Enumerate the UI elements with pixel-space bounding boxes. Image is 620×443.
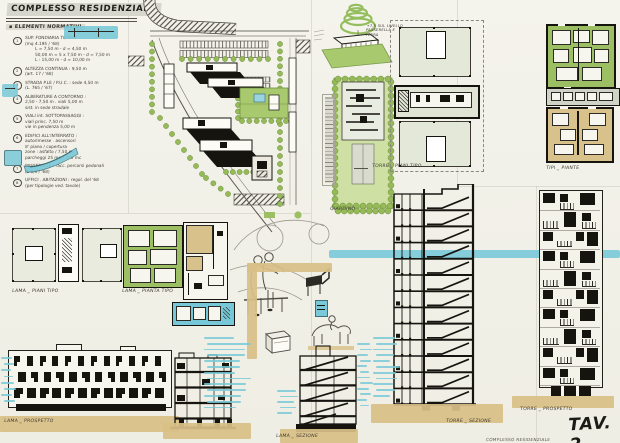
note-line: (per tipologie ved. tavole)	[24, 184, 98, 190]
tower-plinth	[551, 386, 591, 396]
normative-note: 5VIALI int. SOTTOPASSAGGI :viali princ. …	[13, 114, 131, 131]
elevation-floor	[540, 230, 600, 250]
tower-section-label: TORRE _ SEZIONE	[446, 419, 492, 424]
elevation-floor	[540, 327, 600, 347]
annotation-highlight	[207, 366, 240, 368]
site-buildings	[164, 58, 296, 180]
ground-band-section-a	[163, 423, 251, 439]
title-underline	[6, 18, 137, 22]
note-number: 2	[13, 67, 22, 76]
tree-icon	[223, 169, 228, 174]
balcony-railing	[582, 339, 596, 346]
annotation-highlight	[376, 389, 395, 391]
tree-icon	[149, 72, 154, 77]
footer-stamp: COMPLESSO RESIDENZIALE	[486, 437, 551, 442]
window-cell	[580, 251, 595, 263]
tower-elevation-label: TORRE _ PROSPETTO	[520, 407, 573, 412]
window-notch	[68, 362, 71, 366]
annotation-highlight	[4, 400, 15, 402]
window-cell	[155, 356, 161, 366]
note-line: sist. in sede stradale	[24, 106, 85, 112]
tree-icon	[149, 109, 154, 114]
window-cell	[65, 388, 74, 398]
tree-icon	[149, 102, 154, 107]
slab-section-b	[294, 344, 362, 440]
tree-icon	[203, 175, 208, 180]
tree-icon	[225, 191, 230, 196]
plaza-pencil-lines	[230, 220, 329, 300]
stair-core	[426, 136, 446, 162]
leader-line	[354, 168, 368, 169]
tree-icon	[199, 171, 204, 176]
window-cell	[543, 193, 555, 203]
stair-run	[62, 238, 72, 262]
tree-icon	[149, 94, 154, 99]
tree-icon	[342, 76, 348, 82]
tree-icon	[237, 169, 242, 174]
tree-icon	[371, 76, 377, 82]
window-cell	[95, 372, 103, 382]
window-notch	[108, 378, 111, 382]
tree-icon	[277, 49, 282, 54]
sheet-seam	[457, 186, 620, 187]
annotation-highlight	[376, 366, 400, 368]
normative-note: 2ALTEZZA CONTINUA : 9,50 m(art. 17 / '68…	[13, 67, 131, 78]
tree-icon	[179, 56, 184, 61]
tower-plan-lower	[399, 121, 471, 167]
stair-core	[100, 244, 117, 258]
window-cell	[576, 348, 584, 357]
window-notch	[56, 378, 59, 382]
stair-core	[25, 246, 43, 261]
green-hedge	[264, 212, 275, 218]
tower-section	[392, 184, 480, 416]
window-cell	[31, 372, 39, 382]
window-cell	[582, 213, 591, 221]
tree-icon	[163, 123, 168, 128]
balcony-railing	[543, 338, 559, 346]
window-cell	[27, 388, 36, 398]
tree-icon	[277, 177, 282, 182]
annotation-highlight	[357, 343, 370, 345]
slab-plan-a	[12, 228, 56, 282]
tree-icon	[332, 196, 338, 202]
window-cell	[108, 372, 116, 382]
tree-icon	[277, 64, 282, 69]
window-cell	[65, 356, 71, 366]
window-notch	[133, 378, 136, 382]
normative-note: 8UFFICI . ABITAZIONI : regol. del '68(pe…	[13, 178, 131, 189]
annotation-highlight	[376, 343, 397, 345]
annotation-highlight	[360, 393, 371, 395]
window-cell	[543, 232, 553, 241]
annotation-highlight	[1, 357, 12, 359]
window-cell	[116, 356, 122, 366]
tree-icon	[169, 131, 174, 136]
annotation-highlight	[207, 401, 241, 403]
note-line: vie in pendenza 5,00 m	[24, 125, 83, 131]
tree-icon	[149, 41, 154, 46]
elevation-floor	[540, 288, 600, 308]
tree-icon	[248, 56, 253, 61]
note-line: (L. 765 / '67)	[24, 86, 98, 92]
tree-icon	[277, 193, 282, 198]
window-cell	[560, 194, 568, 202]
window-cell	[52, 356, 58, 366]
slab-elevation	[8, 350, 172, 408]
window-cell	[78, 388, 87, 398]
window-cell	[40, 388, 49, 398]
balcony-railing	[543, 280, 559, 288]
window-cell	[82, 372, 90, 382]
window-cell	[560, 369, 568, 377]
window-cell	[18, 372, 26, 382]
note-line: VIALI int. SOTTOPASSAGGI :	[24, 114, 83, 120]
annotation-highlight	[204, 395, 241, 397]
annotation-highlight	[1, 369, 11, 371]
central-court	[240, 88, 288, 118]
window-cell	[543, 309, 555, 319]
tree-sketch	[294, 211, 301, 218]
annotation-highlight	[204, 360, 240, 362]
note-number: 5	[13, 115, 22, 124]
tree-icon	[149, 79, 154, 84]
window-cell	[133, 372, 141, 382]
tree-icon	[218, 186, 223, 191]
note-number: 1	[13, 37, 22, 46]
tree-icon	[149, 87, 154, 92]
window-cell	[146, 372, 154, 382]
tree-icon	[277, 78, 282, 83]
tree-icon	[157, 115, 162, 120]
annotation-highlight	[373, 349, 393, 351]
slab-elevation-label: LAMA _ PROSPETTO	[4, 419, 54, 424]
plate-number: TAV. 2	[568, 413, 620, 443]
slab-plans-label: LAMA _ PIANI TIPO	[12, 289, 59, 294]
annotation-highlight	[204, 372, 235, 374]
balcony-railing	[557, 299, 572, 306]
tree-icon	[187, 155, 192, 160]
tree-icon	[360, 208, 366, 214]
annotation-highlight	[373, 383, 393, 385]
window-cell	[69, 372, 77, 382]
tree-icon	[269, 118, 274, 123]
balcony-railing	[543, 221, 559, 229]
window-cell	[543, 251, 555, 261]
axonometric-building	[322, 34, 392, 68]
tree-icon	[244, 169, 249, 174]
window-cell	[116, 388, 125, 398]
annotation-highlight	[277, 401, 294, 403]
annotation-highlight	[4, 363, 14, 365]
window-cell	[560, 252, 568, 260]
annotation-highlight	[207, 354, 245, 356]
window-cell	[52, 388, 61, 398]
note-line: L : 15,00 m - d = 10,00 m	[34, 58, 109, 64]
balcony-railing	[560, 261, 574, 268]
slab-plan-narrow	[58, 224, 79, 282]
annotation-highlight	[1, 394, 12, 396]
bullet-icon: ▪	[9, 24, 13, 30]
balcony-railing	[560, 203, 574, 210]
tower-plan-upper	[399, 27, 471, 77]
tree-icon	[277, 161, 282, 166]
tree-icon	[366, 208, 372, 214]
tree-icon	[332, 189, 338, 195]
tree-icon	[181, 147, 186, 152]
window-notch	[145, 362, 148, 366]
annotation-highlight	[357, 399, 367, 401]
annotation-highlight	[207, 389, 246, 391]
window-notch	[46, 394, 49, 398]
window-cell	[564, 212, 576, 227]
apartment-plan-green	[546, 24, 616, 89]
window-cell	[120, 372, 128, 382]
annotation-highlight	[373, 395, 390, 397]
tree-icon	[276, 118, 281, 123]
window-notch	[148, 394, 151, 398]
tree-icon	[277, 153, 282, 158]
elevation-floor	[540, 249, 600, 269]
tree-icon	[277, 201, 282, 206]
chair-sketch	[306, 269, 329, 296]
elevation-floor	[540, 366, 600, 386]
tree-icon	[254, 118, 259, 123]
elevation-floor	[540, 307, 600, 327]
tree-icon	[247, 118, 252, 123]
tree-icon	[193, 163, 198, 168]
tree-icon	[231, 56, 236, 61]
note-number: 8	[13, 179, 22, 188]
tree-icon	[261, 118, 266, 123]
window-cell	[27, 356, 33, 366]
tree-icon	[277, 56, 282, 61]
normative-note: 1SUP. FONDIARIA TOTALE(mq 4.195 / '68)L …	[13, 36, 131, 64]
apartment-plan-green-mid	[123, 225, 183, 288]
tree-icon	[214, 56, 219, 61]
window-cell	[560, 310, 568, 318]
tree-icon	[205, 56, 210, 61]
slab-elevation-base	[16, 404, 166, 411]
window-cell	[587, 348, 598, 362]
window-notch	[122, 394, 125, 398]
tree-icon	[335, 76, 341, 82]
balcony-railing	[560, 378, 574, 385]
apartment-plan-tan	[546, 107, 614, 163]
rotated-caption-strip	[322, 94, 335, 186]
window-cell	[564, 329, 576, 344]
tower-plans-label: TORRE _ PIANI TIPO	[372, 164, 422, 169]
annotation-highlight	[207, 343, 251, 345]
window-cell	[543, 290, 553, 299]
tree-icon	[388, 175, 394, 181]
tower-elevation	[539, 190, 603, 388]
annotation-highlight	[204, 383, 246, 385]
balcony-railing	[557, 241, 572, 248]
window-notch	[20, 394, 23, 398]
stair-annex	[398, 90, 409, 112]
window-cell	[582, 330, 591, 338]
window-cell	[576, 232, 584, 241]
window-cell	[44, 372, 52, 382]
annotation-highlight	[373, 337, 395, 339]
tree-icon	[373, 208, 379, 214]
balcony-railing	[582, 281, 596, 288]
window-cell	[91, 356, 97, 366]
window-notch	[17, 362, 20, 366]
window-cell	[543, 348, 553, 357]
annotation-highlight	[204, 337, 234, 339]
tree-icon	[277, 185, 282, 190]
annotation-highlight	[360, 360, 371, 362]
window-cell	[155, 388, 164, 398]
tree-icon	[240, 56, 245, 61]
window-cell	[104, 356, 110, 366]
tree-icon	[257, 56, 262, 61]
lawn	[322, 44, 392, 68]
window-notch	[43, 362, 46, 366]
slab-apartment-label: LAMA _ PIANTA TIPO	[122, 289, 174, 294]
window-cell	[159, 372, 167, 382]
window-cell	[580, 193, 595, 205]
window-cell	[14, 356, 20, 366]
apartment-plan-corner	[183, 222, 228, 300]
tree-icon	[283, 118, 288, 123]
window-cell	[56, 372, 64, 382]
cyan-detail-sketch	[2, 84, 18, 97]
tree-icon	[277, 129, 282, 134]
window-cell	[582, 272, 591, 280]
elevation-floor	[540, 346, 600, 366]
tree-icon	[385, 208, 391, 214]
annotation-highlight	[1, 382, 14, 384]
tree-icon	[277, 145, 282, 150]
annotation-highlight	[277, 412, 292, 414]
tree-icon	[188, 56, 193, 61]
window-cell	[40, 356, 46, 366]
window-notch	[97, 394, 100, 398]
tree-icon	[379, 208, 385, 214]
balcony-railing	[582, 222, 596, 229]
stair-core	[426, 31, 446, 59]
window-notch	[159, 378, 162, 382]
tree-icon	[149, 57, 154, 62]
tree-icon	[356, 76, 362, 82]
balcony-railing	[557, 357, 572, 364]
tree-icon	[277, 71, 282, 76]
drawing-board: COMPLESSO RESIDENZIALE ▪ ELEMENTI NORMAT…	[0, 0, 620, 443]
window-cell	[587, 232, 598, 246]
tree-icon	[378, 76, 384, 82]
window-notch	[31, 378, 34, 382]
pedestal-sketch	[266, 331, 290, 353]
window-cell	[580, 368, 595, 380]
window-notch	[119, 362, 122, 366]
tower-plan-mid	[394, 85, 480, 119]
tree-icon	[149, 64, 154, 69]
tree-icon	[230, 169, 235, 174]
tree-icon	[222, 56, 227, 61]
tree-icon	[277, 169, 282, 174]
slab-section-label: LAMA _ SEZIONE	[276, 434, 319, 439]
window-cell	[104, 388, 113, 398]
tree-icon	[175, 139, 180, 144]
balcony-railing	[560, 319, 574, 326]
note-line: L = 7,50 m - d = 4,50 m	[34, 47, 109, 53]
window-cell	[564, 271, 576, 286]
window-notch	[71, 394, 74, 398]
annotation-highlight	[376, 354, 394, 356]
annotation-highlight	[277, 390, 296, 392]
window-cell	[580, 309, 595, 321]
apartment-plan-bar	[546, 88, 620, 106]
tan-deck-band	[247, 263, 332, 272]
tree-icon	[239, 118, 244, 123]
window-cell	[129, 356, 135, 366]
annotation-highlight	[357, 365, 367, 367]
annotation-highlight	[373, 360, 390, 362]
window-cell	[129, 388, 138, 398]
normative-note: 3STRADA P.LE / P.U.C. : sede 4,50 m(L. 7…	[13, 81, 131, 92]
slab-plan-c	[82, 228, 122, 282]
elevation-floor	[540, 191, 600, 211]
tree-icon	[265, 56, 270, 61]
tree-icon	[277, 137, 282, 142]
tree-icon	[149, 49, 154, 54]
cyan-ramp-sketch	[20, 140, 82, 176]
window-cell	[576, 290, 584, 299]
window-cell	[543, 368, 555, 378]
annotation-highlight	[357, 388, 369, 390]
window-cell	[142, 388, 151, 398]
tree-icon	[197, 56, 202, 61]
elevation-floor	[540, 269, 600, 289]
annotation-highlight	[4, 388, 16, 390]
tree-icon	[211, 181, 216, 186]
elevation-floor	[540, 210, 600, 230]
window-cell	[91, 388, 100, 398]
window-notch	[94, 362, 97, 366]
window-cell	[142, 356, 148, 366]
tree-icon	[277, 41, 282, 46]
tree-icon	[349, 76, 355, 82]
window-cell	[78, 356, 84, 366]
cyan-section-diagram	[64, 26, 118, 39]
annotation-highlight	[360, 382, 373, 384]
normative-note: 4ALBERATURE A CONTORNO :2,50 - 7,50 m . …	[13, 95, 131, 112]
apartment-plans-label: TIPI _ PIANTE	[546, 166, 580, 171]
tree-icon	[364, 76, 370, 82]
window-notch	[82, 378, 85, 382]
annotation-highlight	[357, 354, 368, 356]
note-line: 2,50 - 7,50 m . viali 5,00 m	[24, 100, 85, 106]
annotation-highlight	[373, 372, 396, 374]
tree-icon	[332, 86, 338, 92]
note-line: (art. 17 / '68)	[24, 72, 86, 78]
annotation-highlight	[360, 371, 369, 373]
window-cell	[587, 290, 598, 304]
